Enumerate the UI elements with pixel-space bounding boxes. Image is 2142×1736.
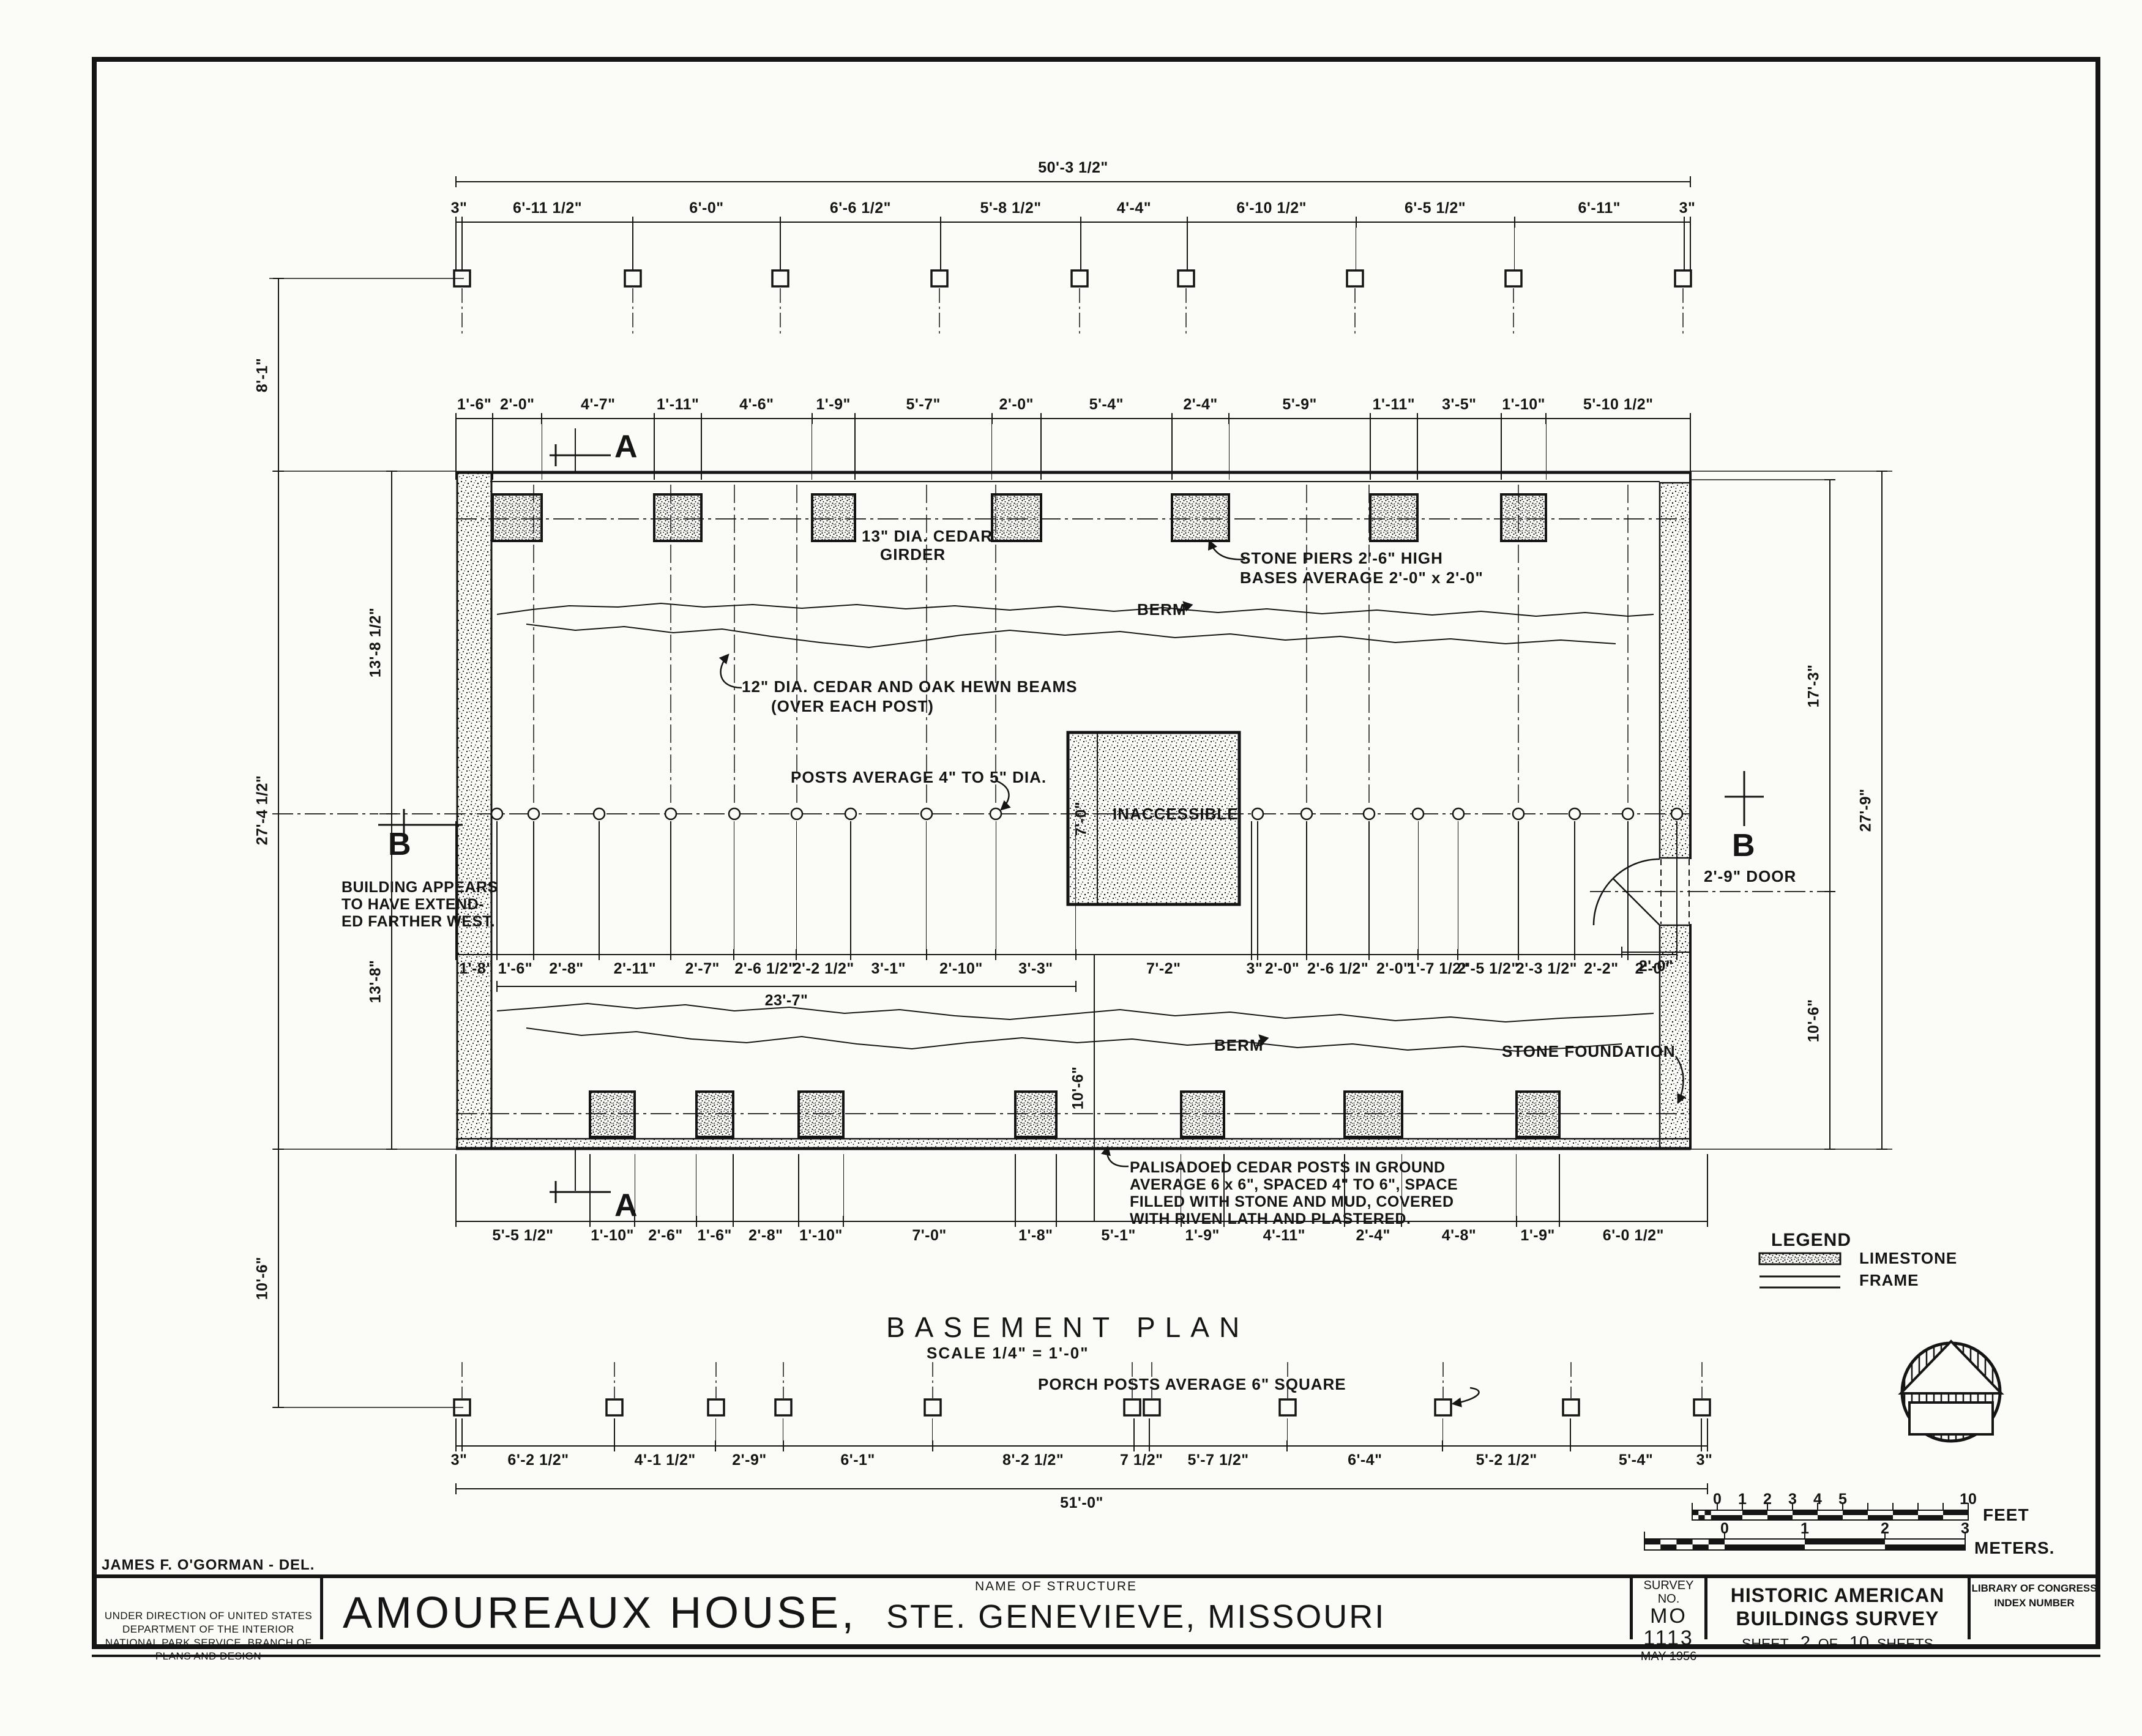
dim-text: 2'-0"	[1265, 961, 1299, 978]
dim-tick	[386, 471, 397, 472]
dim-ext	[1574, 821, 1575, 949]
dim-tick	[1356, 217, 1357, 228]
dim-ext	[455, 1154, 457, 1216]
survey-cell: SURVEY NO. MO 1113 MAY 1956	[1633, 1579, 1704, 1664]
note-beams-line1: 12" DIA. CEDAR AND OAK HEWN BEAMS	[742, 678, 1078, 696]
dim-tick	[940, 217, 941, 228]
note-girder-top-line2: GIRDER	[880, 546, 946, 564]
dim-text: 2'-4"	[1356, 1227, 1390, 1245]
dim-text: 50'-3 1/2"	[1038, 160, 1108, 177]
dim-ext	[1707, 1418, 1708, 1440]
dim-tick	[1417, 413, 1418, 424]
scale-bar-number: 3	[1961, 1521, 1969, 1537]
dim-tick	[1370, 413, 1371, 424]
dim-text: 1'-8"	[1018, 1227, 1053, 1245]
dim-ext	[1442, 1418, 1444, 1440]
dim-text: 10'-6"	[1805, 999, 1823, 1042]
note-berm-bottom: BERM	[1214, 1037, 1264, 1055]
dim-ext	[780, 228, 781, 270]
dim-ext	[589, 1154, 591, 1216]
porch-posts-top-stems	[462, 288, 1683, 335]
dim-text: 2'-3 1/2"	[1516, 961, 1577, 978]
dim-line	[278, 471, 279, 1149]
dim-tick	[1690, 947, 1691, 958]
dim-ext	[1075, 821, 1077, 949]
dim-tick	[843, 1216, 844, 1227]
note-inaccessible: INACCESSIBLE	[1113, 805, 1239, 824]
dim-ext	[1229, 424, 1230, 480]
note-girder-top-line1: 13" DIA. CEDAR	[862, 527, 993, 546]
dim-tick	[1442, 1440, 1443, 1451]
dim-line	[1097, 732, 1098, 904]
dim-tick	[1133, 1440, 1135, 1451]
dim-tick	[386, 1149, 397, 1150]
dim-text: 2'-10"	[939, 961, 983, 978]
note-door: 2'-9" DOOR	[1704, 868, 1796, 886]
dim-ext	[734, 821, 735, 949]
dim-ext	[1701, 1418, 1702, 1440]
dim-tick	[696, 1216, 697, 1227]
dim-ext	[1559, 1154, 1560, 1216]
dim-line	[278, 1149, 279, 1407]
dim-text: 13'-8 1/2"	[367, 608, 384, 678]
dim-tick	[854, 413, 856, 424]
dim-ext	[932, 1418, 933, 1440]
dim-ext	[455, 1418, 457, 1440]
dim-text: 10'-6"	[1070, 1067, 1087, 1110]
dim-tick	[1092, 732, 1103, 733]
dim-text: 1'-11"	[657, 397, 699, 414]
dim-tick	[455, 217, 457, 228]
legend-swatches	[1759, 1253, 1840, 1287]
dim-text: 23'-7"	[765, 993, 808, 1010]
door	[1594, 859, 1689, 925]
legend-limestone-swatch	[1759, 1253, 1840, 1264]
dim-text: 5'-4"	[1089, 397, 1124, 414]
survey-state: MO	[1633, 1606, 1704, 1628]
section-letter-b-right: B	[1732, 830, 1755, 862]
dim-tick	[1707, 1440, 1708, 1451]
dim-ext	[812, 424, 813, 480]
dim-text: 4'-11"	[1263, 1227, 1305, 1245]
dim-text: 1'-10"	[799, 1227, 843, 1245]
dim-tick	[1876, 471, 1887, 472]
dim-tick	[1015, 1216, 1016, 1227]
dim-text: 1'-6"	[697, 1227, 731, 1245]
dim-ext	[599, 821, 600, 949]
dim-text: 5'-2 1/2"	[1476, 1452, 1537, 1469]
dim-ext	[1040, 424, 1042, 480]
dim-text: 7'-0"	[912, 1227, 946, 1245]
scale-bar-number: 10	[1960, 1492, 1977, 1507]
porch-posts-bottom	[454, 1399, 1710, 1415]
dim-text: 2'-0"	[500, 397, 534, 414]
dim-tick	[589, 1216, 591, 1227]
section-letter-a-top: A	[614, 431, 638, 463]
structure-location: STE. GENEVIEVE, MISSOURI	[886, 1600, 1386, 1633]
plan-linework	[0, 0, 2142, 1736]
stone-piers-top	[493, 494, 1546, 541]
dim-text: 2'-0"	[1639, 958, 1673, 975]
legend-title: LEGEND	[1771, 1230, 1851, 1251]
dim-ext	[1056, 1154, 1057, 1216]
dim-text: 6'-1"	[840, 1452, 875, 1469]
dim-text: 6'-6 1/2"	[830, 200, 891, 217]
section-letter-b-left: B	[388, 829, 411, 860]
dim-ext	[1690, 228, 1691, 270]
dim-tick	[455, 949, 457, 960]
titleblock-direction-cell: UNDER DIRECTION OF UNITED STATES DEPARTM…	[97, 1609, 320, 1663]
dim-tick	[1306, 949, 1307, 960]
dim-text: 2'-8"	[748, 1227, 783, 1245]
note-posts: POSTS AVERAGE 4" TO 5" DIA.	[791, 769, 1047, 787]
dim-text: 1'-6"	[498, 961, 532, 978]
dim-text: 5'-5 1/2"	[492, 1227, 553, 1245]
dim-tick	[1545, 413, 1547, 424]
dim-tick	[796, 949, 797, 960]
dim-tick	[1228, 413, 1230, 424]
logo-body	[1909, 1403, 1993, 1434]
sheet-of: OF	[1818, 1636, 1838, 1652]
dim-text: 2'-6 1/2"	[734, 961, 796, 978]
survey-number: 1113	[1633, 1628, 1704, 1650]
dim-ext	[850, 821, 851, 949]
dim-tick	[1368, 949, 1370, 960]
dim-tick	[632, 217, 633, 228]
dim-text: 2'-9"	[732, 1452, 766, 1469]
dim-tick	[932, 1440, 933, 1451]
dim-ext	[733, 1154, 734, 1216]
survey-no-label: SURVEY NO.	[1633, 1579, 1704, 1606]
dim-tick	[1257, 949, 1258, 960]
legend-limestone-label: LIMESTONE	[1859, 1250, 1957, 1268]
dim-tick	[850, 949, 851, 960]
loc-cell: LIBRARY OF CONGRESS INDEX NUMBER	[1971, 1581, 2098, 1611]
habs-logo	[1901, 1341, 2001, 1441]
dim-text: 2'-2 1/2"	[793, 961, 854, 978]
dim-text: 2'-4"	[1183, 397, 1217, 414]
dim-tick	[273, 278, 284, 279]
dim-ext	[614, 1418, 615, 1440]
dim-line	[497, 986, 1076, 987]
direction-line2: NATIONAL PARK SERVICE, BRANCH OF PLANS A…	[97, 1636, 320, 1663]
dim-line	[1622, 952, 1690, 953]
dim-ext	[991, 424, 993, 480]
dim-tick	[455, 1483, 457, 1494]
dim-text: 4'-8"	[1442, 1227, 1476, 1245]
dim-text: 13'-8"	[367, 960, 384, 1004]
dim-text: 5'-10 1/2"	[1583, 397, 1654, 414]
scale-bar-number: 1	[1738, 1492, 1747, 1507]
dim-ext	[796, 821, 797, 949]
dim-ext	[461, 228, 463, 270]
dim-ext	[1627, 821, 1629, 949]
dim-tick	[455, 1216, 457, 1227]
bottom-palisade-wall	[456, 1139, 1690, 1148]
note-building-west: BUILDING APPEARS TO HAVE EXTEND- ED FART…	[341, 879, 498, 930]
dim-tick	[1417, 949, 1419, 960]
dim-ext	[1690, 424, 1691, 480]
dim-ext	[715, 1418, 717, 1440]
dim-ext	[492, 424, 493, 480]
dim-ext	[696, 1154, 697, 1216]
dim-ext	[1684, 228, 1685, 270]
dim-tick	[1187, 217, 1188, 228]
dim-text: 4'-6"	[739, 397, 774, 414]
dim-tick	[1056, 1216, 1057, 1227]
dim-tick	[783, 1440, 784, 1451]
dim-ext	[1518, 821, 1519, 949]
habs-sheet: 50'-3 1/2" 3"6'-11 1/2"6'-0"6'-6 1/2"5'-…	[0, 0, 2142, 1736]
dim-tick	[1707, 1483, 1708, 1494]
dim-tick	[1690, 413, 1691, 424]
dim-tick	[273, 471, 284, 472]
dim-tick	[533, 949, 534, 960]
dim-text: 3'-5"	[1442, 397, 1476, 414]
dim-ext	[926, 821, 927, 949]
dim-tick	[386, 813, 397, 814]
dim-ext	[1306, 821, 1307, 949]
dim-ext	[1458, 821, 1459, 949]
dim-text: 6'-11"	[1578, 200, 1621, 217]
dim-tick	[1286, 1440, 1288, 1451]
dim-text: 6'-10 1/2"	[1236, 200, 1307, 217]
structure-name-row: AMOUREAUX HOUSE, STE. GENEVIEVE, MISSOUR…	[343, 1591, 1386, 1635]
scale-bar-number: 4	[1813, 1492, 1822, 1507]
dim-text: 51'-0"	[1060, 1495, 1103, 1512]
dim-ext	[1149, 1418, 1150, 1440]
dim-tick	[1080, 217, 1081, 228]
dim-tick	[701, 413, 702, 424]
dim-text: 6'-0"	[689, 200, 723, 217]
dim-text: 1'-9"	[1185, 1227, 1219, 1245]
dim-text: 1'-6"	[457, 397, 491, 414]
loc-line2: INDEX NUMBER	[1971, 1596, 2098, 1611]
dim-tick	[1701, 1440, 1702, 1451]
titleblock-divider-1	[320, 1576, 323, 1639]
drawing-title: BASEMENT PLAN	[886, 1313, 1249, 1341]
dim-tick	[273, 1149, 284, 1150]
dim-tick	[1040, 413, 1042, 424]
dim-text: 2'-6"	[648, 1227, 682, 1245]
dim-tick	[991, 413, 993, 424]
dim-ext	[1187, 228, 1188, 270]
dim-ext	[1501, 424, 1502, 480]
girder-centerlines	[272, 519, 1835, 1114]
dim-text: 2'-0"	[1376, 961, 1411, 978]
dim-tick	[455, 1440, 457, 1451]
dim-tick	[541, 413, 542, 424]
dim-line	[1829, 480, 1830, 892]
dim-tick	[1149, 1440, 1150, 1451]
dim-line	[391, 471, 392, 814]
porch-posts-leader	[1453, 1388, 1479, 1404]
dim-ext	[783, 1418, 784, 1440]
dim-ext	[1171, 424, 1173, 480]
section-letter-a-bottom: A	[614, 1190, 638, 1221]
dim-ext	[1251, 821, 1252, 949]
dim-text: 7'-2"	[1146, 961, 1181, 978]
dim-ext	[542, 424, 543, 480]
dim-text: 10'-6"	[254, 1257, 271, 1300]
structure-name: AMOUREAUX HOUSE,	[343, 1591, 857, 1635]
dim-text: 2'-8"	[549, 961, 583, 978]
dim-text: 2'-6 1/2"	[1307, 961, 1368, 978]
drawing-scale: SCALE 1/4" = 1'-0"	[927, 1345, 1089, 1361]
dim-ext	[1015, 1154, 1016, 1216]
dim-text: 3'-1"	[871, 961, 906, 978]
dim-tick	[1690, 176, 1691, 187]
sheet-number: 2	[1801, 1633, 1810, 1653]
left-stone-wall	[457, 473, 491, 1149]
dim-tick	[1516, 1216, 1517, 1227]
habs-line1: HISTORIC AMERICAN	[1707, 1584, 1968, 1607]
dim-text: 1'-11"	[1373, 397, 1415, 414]
dim-text: 3"	[451, 1452, 468, 1469]
dim-tick	[461, 1440, 463, 1451]
dim-ext	[1257, 821, 1258, 949]
dim-ext	[632, 228, 633, 270]
dim-text: 6'-0 1/2"	[1603, 1227, 1664, 1245]
direction-line1: UNDER DIRECTION OF UNITED STATES DEPARTM…	[97, 1609, 320, 1636]
dim-text: 6'-2 1/2"	[507, 1452, 569, 1469]
dim-tick	[798, 1216, 799, 1227]
dim-tick	[1574, 949, 1575, 960]
dim-tick	[1684, 217, 1685, 228]
dim-tick	[1514, 217, 1515, 228]
dim-ext	[1418, 821, 1419, 949]
dim-line	[278, 278, 279, 471]
dim-ext	[940, 228, 941, 270]
dim-text: 5'-7"	[906, 397, 940, 414]
dim-tick	[733, 949, 734, 960]
dim-line	[456, 418, 1690, 419]
dim-tick	[492, 413, 493, 424]
dim-ext	[854, 424, 856, 480]
dim-tick	[670, 949, 671, 960]
dim-ext	[701, 424, 702, 480]
dim-tick	[1676, 949, 1677, 960]
dim-line	[456, 1221, 1707, 1222]
delineator-signature: JAMES F. O'GORMAN - DEL.	[102, 1557, 315, 1574]
dim-ext	[670, 821, 671, 949]
dim-line	[1881, 471, 1883, 1149]
dim-line	[456, 954, 1677, 955]
dim-tick	[496, 981, 498, 992]
note-stone-foundation: STONE FOUNDATION	[1502, 1043, 1676, 1061]
dim-text: 5'-9"	[1282, 397, 1316, 414]
dim-tick	[273, 1407, 284, 1408]
dim-tick	[614, 1440, 615, 1451]
dim-text: 4'-7"	[581, 397, 615, 414]
dim-tick	[1690, 217, 1691, 228]
dim-line	[456, 1488, 1707, 1489]
dim-text: 2'-5 1/2"	[1458, 961, 1519, 978]
dim-tick	[926, 949, 927, 960]
dim-text: 1'-10"	[1502, 397, 1545, 414]
dim-ext	[1570, 1418, 1571, 1440]
dim-ext	[1516, 1154, 1517, 1216]
dim-ext	[1370, 424, 1371, 480]
habs-cell: HISTORIC AMERICAN BUILDINGS SURVEY SHEET…	[1707, 1584, 1968, 1652]
dim-text: 6'-4"	[1348, 1452, 1382, 1469]
dim-text: 7 1/2"	[1120, 1452, 1163, 1469]
dim-tick	[733, 1216, 734, 1227]
dim-text: 3"	[1679, 200, 1696, 217]
dim-tick	[1707, 1216, 1708, 1227]
note-porch-posts: PORCH POSTS AVERAGE 6" SQUARE	[1038, 1376, 1346, 1394]
dim-tick	[780, 217, 781, 228]
scale-bar-meters-label: METERS.	[1974, 1538, 2054, 1558]
dim-tick	[1627, 949, 1629, 960]
sheet-line: SHEET 2 OF 10 SHEETS	[1707, 1634, 1968, 1652]
dim-tick	[1824, 1149, 1835, 1150]
dim-ext	[996, 821, 997, 949]
dim-tick	[496, 949, 498, 960]
dim-ext	[1707, 1154, 1708, 1216]
dim-text: 4'-1 1/2"	[635, 1452, 696, 1469]
dim-tick	[654, 413, 655, 424]
sheet-sheets: SHEETS	[1877, 1636, 1933, 1652]
dim-tick	[995, 949, 996, 960]
dim-ext	[1676, 821, 1677, 949]
dim-line	[1829, 892, 1830, 1149]
dim-text: 8'-2 1/2"	[1002, 1452, 1064, 1469]
dim-text: 1'-8"	[459, 961, 493, 978]
scale-bar-number: 2	[1763, 1492, 1772, 1507]
loc-line1: LIBRARY OF CONGRESS	[1971, 1581, 2098, 1596]
dim-line	[391, 814, 392, 1149]
dim-ext	[1417, 424, 1418, 480]
scale-bar-number: 3	[1788, 1492, 1797, 1507]
dim-text: 3"	[1696, 1452, 1713, 1469]
dim-text: 6'-5 1/2"	[1405, 200, 1466, 217]
dim-text: 1'-9"	[816, 397, 850, 414]
dim-text: 7'-0"	[1073, 801, 1090, 835]
beams-leader	[721, 655, 742, 688]
dim-line	[1094, 955, 1095, 1221]
dim-ext	[1080, 228, 1081, 270]
dim-text: 3'-3"	[1018, 961, 1053, 978]
note-stone-piers-line2: BASES AVERAGE 2'-0" x 2'-0"	[1240, 569, 1483, 587]
note-berm-top: BERM	[1137, 601, 1187, 619]
titleblock-top-line	[92, 1574, 2100, 1578]
dim-ext	[654, 424, 655, 480]
note-stone-piers-line1: STONE PIERS 2'-6" HIGH	[1240, 549, 1443, 568]
dim-text: 17'-3"	[1805, 664, 1823, 707]
dim-ext	[843, 1154, 845, 1216]
dim-text: 1'-9"	[1520, 1227, 1554, 1245]
dim-text: 1'-10"	[591, 1227, 634, 1245]
dim-ext	[455, 228, 457, 270]
habs-line2: BUILDINGS SURVEY	[1707, 1607, 1968, 1630]
dim-line	[456, 222, 1690, 223]
dim-tick	[1876, 1149, 1887, 1150]
dim-tick	[1089, 1221, 1100, 1222]
sheet-total: 10	[1849, 1633, 1869, 1653]
dim-text: 5'-4"	[1619, 1452, 1653, 1469]
dim-tick	[1621, 947, 1622, 958]
porch-posts-top	[454, 270, 1691, 286]
dim-tick	[461, 217, 463, 228]
dim-ext	[1287, 1418, 1288, 1440]
dim-tick	[1171, 413, 1173, 424]
dim-text: 2'-2"	[1584, 961, 1618, 978]
scale-bar-number: 2	[1881, 1521, 1889, 1537]
scale-bar-number: 0	[1713, 1492, 1722, 1507]
scale-bar-number: 1	[1801, 1521, 1809, 1537]
legend-frame-label: FRAME	[1859, 1272, 1919, 1290]
